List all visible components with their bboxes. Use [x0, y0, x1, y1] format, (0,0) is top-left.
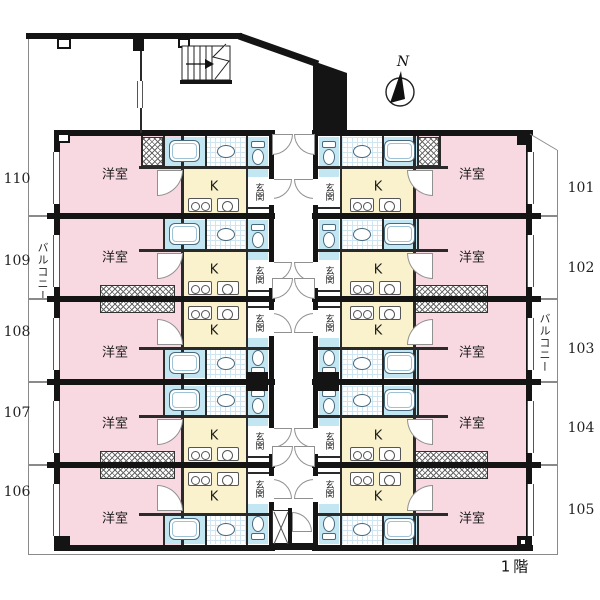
balcony-edge	[530, 134, 557, 150]
compass-icon	[386, 71, 414, 106]
stairs-icon	[180, 44, 232, 84]
overlay-graphics	[0, 0, 600, 600]
elevator-shaft	[313, 61, 347, 133]
floor-plan: バルコニー バルコニー 1階 N 洋室K玄関110洋室K玄関109洋室K玄関10…	[0, 0, 600, 600]
diagonal-wall	[239, 36, 318, 64]
duct-x-icon	[274, 512, 288, 544]
